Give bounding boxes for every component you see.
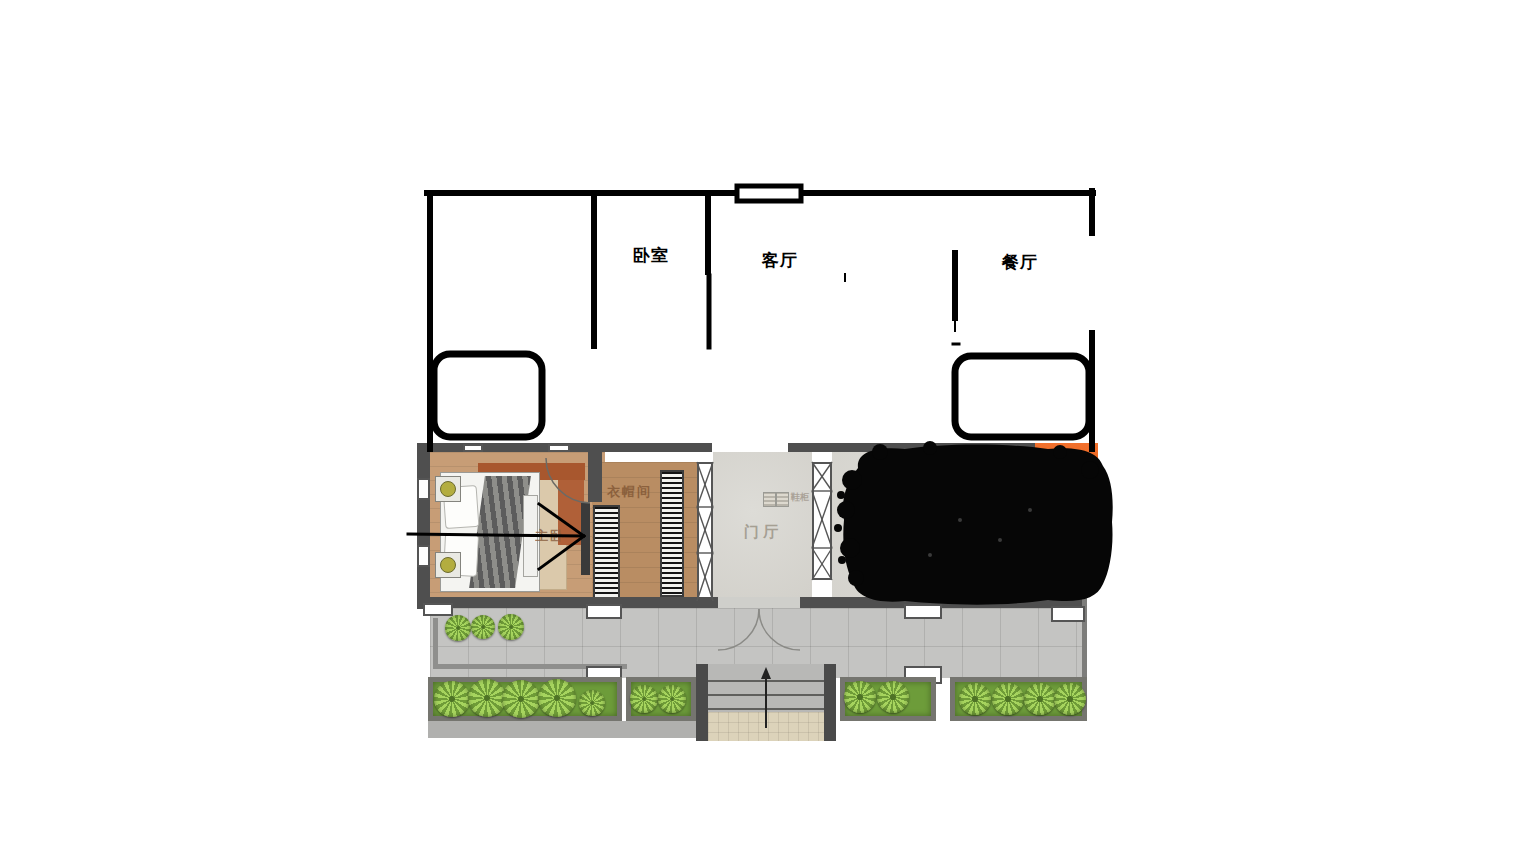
sketch-living-room-label: 客厅 — [762, 249, 798, 272]
sketch-overlay — [0, 0, 1536, 864]
floorplan-canvas: 主卧 衣帽间 门厅 鞋柜 进店 — [0, 0, 1536, 864]
sketch-dining-room-label: 餐厅 — [1002, 251, 1038, 274]
sketch-bedroom-label: 卧室 — [633, 244, 669, 267]
